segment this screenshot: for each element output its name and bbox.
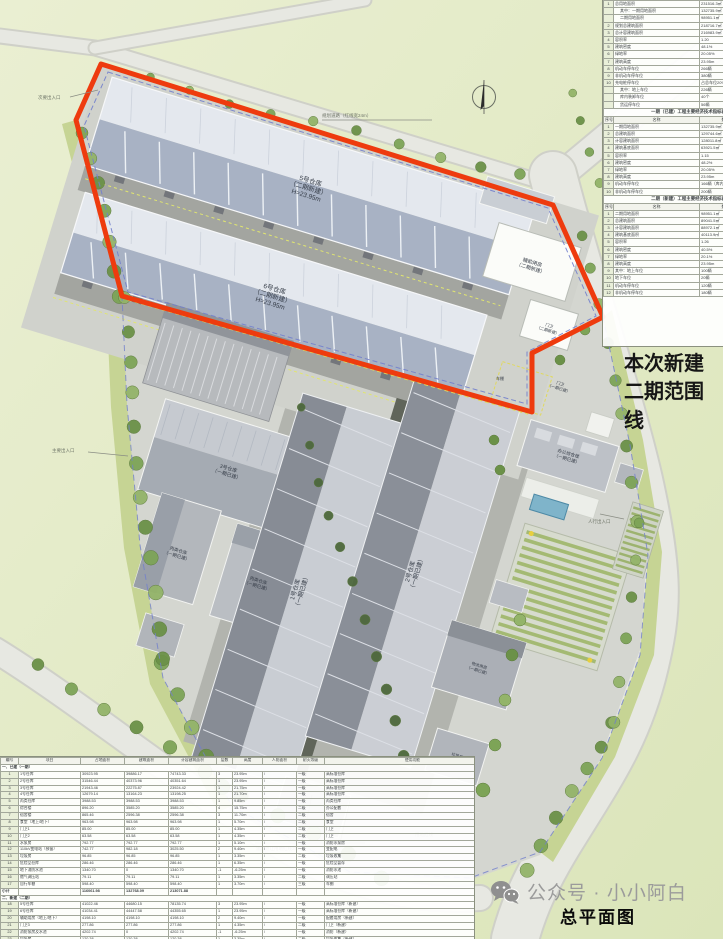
building-label: 车棚 [496,375,504,381]
annotation-label: 人行出入口 [588,518,611,525]
section-row: 一、已建（一期） [1,764,475,771]
watermark: 公众号 · 小小阿白 [490,878,687,905]
table-row: 3总计容建筑面积216983.9㎡ [604,29,723,36]
table-row: 9非机动车停车位380辆 [604,72,723,79]
table-row: 5丙类仓库3988.533988.533988.5319.85m/一级丙类仓库 [1,799,475,806]
table-row: 10充电桩停车位占总车位20% [604,80,723,87]
table-row: 7绿地率20.1% [604,253,723,260]
table-row: 8建筑高度23.95m [604,261,723,268]
table-row: 其中：地上车位226辆 [604,87,723,94]
table-row: 196号仓库41034.4144447.5844355.65123.95m/一级… [1,909,475,916]
table-row: 二期用地面积98951.1㎡ [604,15,723,22]
table-row: 10门卫263.5863.5863.5814.35m/二级门卫 [1,833,475,840]
drawing-title: 总平面图 [560,903,636,928]
table-row: 22号仓库31546.4440373.9640351.64123.95m/一级高… [1,778,475,785]
table-row: 9其中：地上车位100辆 [604,268,723,275]
table-row: 185号仓库41022.4644680.1578135.74323.95m/一级… [1,902,475,909]
subtotal-row: 小计116061.98132768.09213071.88 [1,888,475,895]
table-row: 9门卫185.0085.0085.0014.35m/二级门卫 [1,826,475,833]
table-row: 8食堂（地上/地下）963.98963.98963.9815.70m/二级食堂 [1,819,475,826]
table-row: 7建筑高度23.95m [604,58,723,65]
section-header-row: 二期（新建）工程主要经济技术指标表 [604,195,723,203]
annotation-label: 规划道路（红线宽24m） [322,112,371,119]
table-row: 22消防泵房及水池4202.7404202.74-1-6.25m/一级消防（新建… [1,929,475,936]
table-row: 12非机动车停车位180辆 [604,289,723,296]
table-row: 4容积率1.20 [604,36,723,43]
table-row: 其中：一期用地面积132735.9㎡ [604,8,723,15]
annotation-label: 次要出入口 [38,94,61,101]
table-row: 2总建筑面积89041.5㎡ [604,217,723,224]
table-row: 9机动车停车位166辆（库内及地面） [604,181,723,188]
top-right-indicator-table: 1总用地面积231516.3㎡其中：一期用地面积132735.9㎡二期用地面积9… [603,0,723,346]
column-header-row: 编号项目占地面积建筑面积计容建筑面积层数高度人防面积耐火等级使用功能 [1,758,475,765]
table-row: 5容积率1.26 [604,239,723,246]
table-row: 12110kV变电站（预留）742.77982.183025.5029.40m/… [1,847,475,854]
table-row: 库内装卸车位40个 [604,94,723,101]
site-plan-sheet: 5号仓库（二期新建）H=23.95m6号仓库（二期新建）H=23.95m辅助用房… [0,0,723,939]
table-row: 11机动车停车位120辆 [604,282,723,289]
section-row: 二、新建（二期） [1,895,475,902]
table-row: 6综合楼896.203585.203585.20415.75m/二级办公配套 [1,806,475,813]
table-row: 10非机动车停车位200辆 [604,188,723,195]
building-table: 编号项目占地面积建筑面积计容建筑面积层数高度人防面积耐火等级使用功能一、已建（一… [0,757,474,939]
wechat-icon [490,880,520,904]
table-row: 13垃圾房96.8596.8596.8513.35m/二级垃圾收集 [1,854,475,861]
table-row: 货运停车位56辆 [604,101,723,108]
table-row: 4建筑基底面积63921.5㎡ [604,145,723,152]
table-row: 2总建筑面积129744.6㎡ [604,131,723,138]
table-row: 6建筑密度40.5% [604,246,723,253]
section-header-row: 一期（已建）工程主要经济技术指标表 [604,108,723,116]
table-row: 4建筑基底面积40113.9㎡ [604,232,723,239]
bottom-left-building-table: 编号项目占地面积建筑面积计容建筑面积层数高度人防面积耐火等级使用功能一、已建（一… [0,757,474,939]
table-row: 2规划总建筑面积218716.7㎡ [604,22,723,29]
annotation-label: 主要出入口 [52,447,75,454]
table-row: 33号仓库21943.4622275.8723924.42121.75m/一级高… [1,785,475,792]
phase2-note: 本次新建二期范围线 [624,350,722,435]
table-row: 6建筑密度48.2% [604,159,723,166]
table-row: 1总用地面积231516.3㎡ [604,1,723,8]
table-row: 7绿地率20.05% [604,166,723,173]
table-row: 3计容建筑面积128011.8㎡ [604,138,723,145]
table-row: 5容积率1.15 [604,152,723,159]
table-row: 1一期用地面积132735.9㎡ [604,123,723,130]
table-row: 10地下车位20辆 [604,275,723,282]
table-row: 5建筑密度48.1% [604,44,723,51]
column-header-row: 序号名称数值 [604,116,723,123]
table-row: 20辅助用房（地上/地下）4198.104198.104198.1029.40m… [1,916,475,923]
table-row: 8机动车停车位266辆 [604,65,723,72]
table-row: 17自行车棚598.40598.40598.4013.70m/三级车棚 [1,881,475,888]
table-row: 44号仓库12679.1413164.2313198.25121.70m/一级高… [1,792,475,799]
column-header-row: 序号名称数值 [604,203,723,210]
watermark-text: 公众号 · 小小阿白 [527,878,687,905]
table-row: 6绿地率20.05% [604,51,723,58]
table-row: 11号仓库30923.9539886.1774743.33323.95m/一级高… [1,771,475,778]
table-row: 16燃气调压站79.1179.1179.1113.35m/二级调压站 [1,874,475,881]
table-row: 1二期用地面积98951.1㎡ [604,210,723,217]
table-row: 14危险品仓库286.46286.46286.4616.35m/一级危险品暂存 [1,861,475,868]
table-row: 8建筑高度23.95m [604,174,723,181]
table-row: 21门卫3277.86277.86277.8614.35m/二级门卫（新建） [1,923,475,930]
indicator-table: 1总用地面积231516.3㎡其中：一期用地面积132735.9㎡二期用地面积9… [603,0,723,297]
table-row: 7宿舍楼865.462596.382596.38311.70m/二级宿舍 [1,813,475,820]
table-row: 3计容建筑面积88972.1㎡ [604,225,723,232]
table-row: 15地下消防水池1340.7001340.70-1-6.25m/一级消防水池 [1,868,475,875]
table-row: 11水泵房792.77792.77792.7715.10m/一级消防水泵房 [1,840,475,847]
